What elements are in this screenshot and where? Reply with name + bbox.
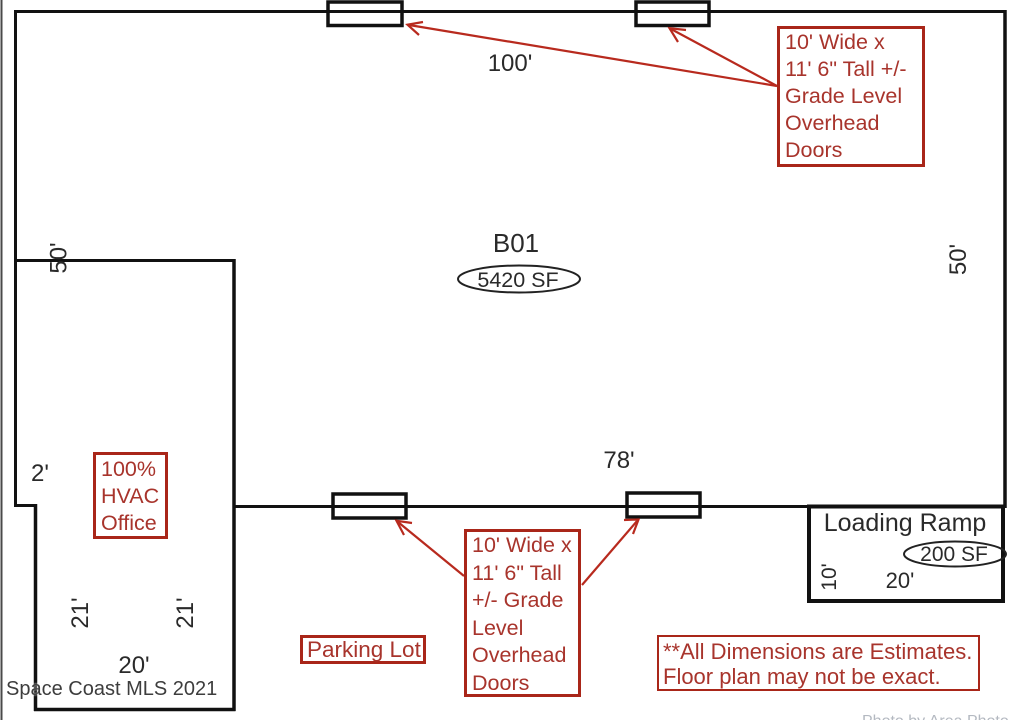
svg-text:20': 20' [886, 568, 915, 593]
svg-text:2': 2' [31, 460, 49, 487]
svg-text:21': 21' [67, 597, 94, 628]
svg-text:50': 50' [46, 242, 73, 273]
svg-text:B01: B01 [493, 228, 539, 258]
svg-text:50': 50' [945, 244, 972, 275]
svg-text:78': 78' [603, 447, 634, 474]
svg-text:Loading Ramp: Loading Ramp [824, 509, 987, 537]
svg-text:21': 21' [172, 597, 199, 628]
svg-text:200 SF: 200 SF [920, 543, 988, 566]
svg-text:5420 SF: 5420 SF [477, 268, 558, 292]
svg-text:10': 10' [818, 563, 841, 590]
svg-text:20': 20' [118, 652, 149, 679]
svg-text:100': 100' [488, 50, 533, 77]
